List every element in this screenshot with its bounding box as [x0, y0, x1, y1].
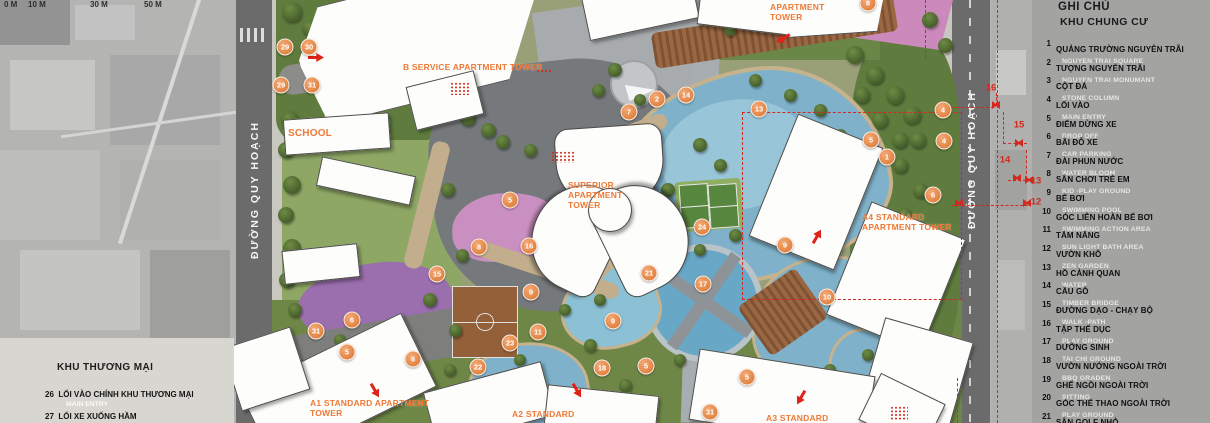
map-number-marker[interactable]: 5: [863, 132, 880, 149]
map-number-marker[interactable]: 31: [304, 77, 321, 94]
red-dashed-line: [997, 0, 998, 423]
building-label: APARTMENT TOWER: [770, 2, 848, 22]
map-number-marker[interactable]: 5: [638, 358, 655, 375]
red-boundary-rect: [742, 112, 962, 300]
map-number-marker[interactable]: 4: [935, 102, 952, 119]
building-label: A2 STANDARD: [512, 409, 632, 419]
entry-arrow-icon: [367, 381, 383, 399]
unit-grid-icon: [450, 82, 470, 95]
map-number-marker[interactable]: 5: [339, 344, 356, 361]
map-number-marker[interactable]: 15: [429, 266, 446, 283]
map-number-marker[interactable]: 31: [702, 404, 719, 421]
map-number-marker[interactable]: 8: [405, 351, 422, 368]
map-number-marker[interactable]: 21: [641, 265, 658, 282]
building-label: B SERVICE APARTMENT TOWER: [403, 62, 553, 72]
building-label: SUPERIOR APARTMENT TOWER: [568, 180, 648, 211]
map-number-marker[interactable]: 23: [502, 335, 519, 352]
building-label: SCHOOL: [288, 128, 378, 140]
building-label: A4 STANDARD APARTMENT TOWER: [862, 212, 954, 232]
map-number-marker[interactable]: 31: [308, 323, 325, 340]
red-callout-number: 16: [986, 83, 997, 94]
map-number-marker[interactable]: 16: [521, 238, 538, 255]
map-number-marker[interactable]: 9: [523, 284, 540, 301]
entry-arrow-icon: [569, 381, 585, 399]
red-leader-line: [1003, 112, 1004, 144]
red-dashed-line: [957, 378, 958, 423]
map-number-marker[interactable]: 2: [649, 91, 666, 108]
map-number-marker[interactable]: 4: [936, 133, 953, 150]
red-callout-number: 15: [1014, 120, 1025, 131]
map-number-marker[interactable]: 29: [273, 77, 290, 94]
unit-grid-icon: [890, 406, 908, 420]
map-number-marker[interactable]: 8: [471, 239, 488, 256]
red-callout-number: 12: [1031, 197, 1042, 208]
map-number-marker[interactable]: 5: [739, 369, 756, 386]
map-number-marker[interactable]: 18: [594, 360, 611, 377]
red-leader-line: [1026, 150, 1027, 179]
map-number-marker[interactable]: 11: [530, 324, 547, 341]
red-leader-line: [952, 205, 1028, 206]
entry-arrow-icon: [793, 388, 809, 406]
map-number-marker[interactable]: 7: [621, 104, 638, 121]
map-number-marker[interactable]: 13: [751, 101, 768, 118]
map-number-marker[interactable]: 29: [277, 39, 294, 56]
site-plan-screenshot: 0 M 10 M 30 M 50 M ĐƯỜNG QUY HOẠCH ĐƯỜNG…: [0, 0, 1210, 423]
red-callout-number: 14: [1000, 155, 1011, 166]
map-number-marker[interactable]: 9: [605, 313, 622, 330]
red-dashed-line: [925, 0, 926, 58]
red-leader-line: [1008, 180, 1026, 181]
map-number-marker[interactable]: 1: [879, 149, 896, 166]
map-number-marker[interactable]: 6: [925, 187, 942, 204]
red-valve-symbol: [1015, 139, 1023, 147]
building-label: A1 STANDARD APARTMENT TOWER: [310, 398, 460, 418]
map-number-marker[interactable]: 30: [301, 39, 318, 56]
unit-grid-icon: [551, 151, 575, 163]
map-number-marker[interactable]: 22: [470, 359, 487, 376]
red-leader-line: [996, 93, 997, 105]
map-number-marker[interactable]: 24: [694, 219, 711, 236]
map-number-marker[interactable]: 5: [502, 192, 519, 209]
map-number-marker[interactable]: 10: [819, 289, 836, 306]
red-callout-number: 13: [1031, 176, 1042, 187]
map-number-marker[interactable]: 9: [777, 237, 794, 254]
map-number-marker[interactable]: 17: [695, 276, 712, 293]
entry-arrow-icon: [774, 31, 792, 47]
map-number-marker[interactable]: 14: [678, 87, 695, 104]
map-number-marker[interactable]: 6: [344, 312, 361, 329]
building-label: A3 STANDARD: [766, 413, 886, 423]
